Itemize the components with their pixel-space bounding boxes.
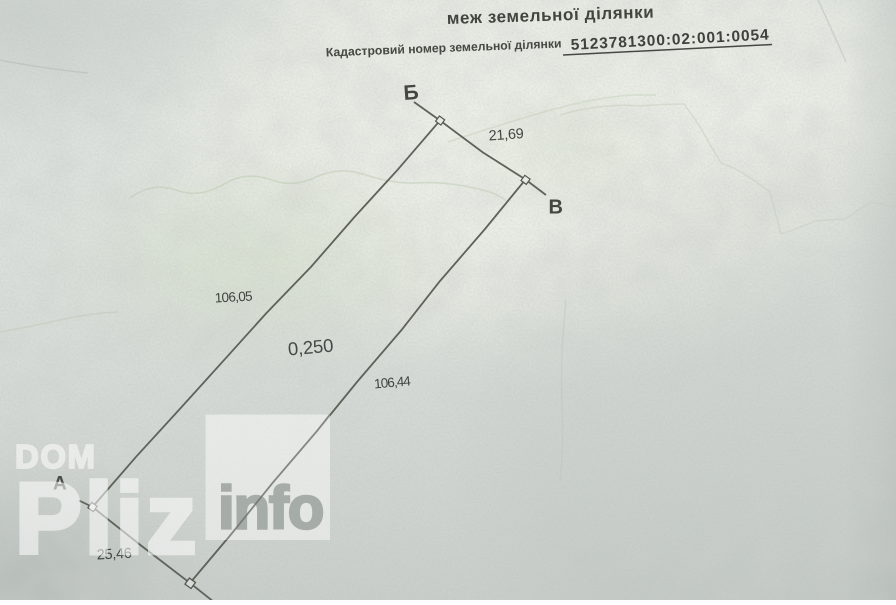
- svg-text:0,250: 0,250: [287, 335, 334, 360]
- svg-text:В: В: [549, 197, 563, 219]
- svg-text:106,05: 106,05: [214, 289, 252, 306]
- svg-text:21,69: 21,69: [488, 126, 524, 144]
- svg-text:Б: Б: [403, 81, 420, 105]
- svg-text:Pliz: Pliz: [15, 463, 199, 575]
